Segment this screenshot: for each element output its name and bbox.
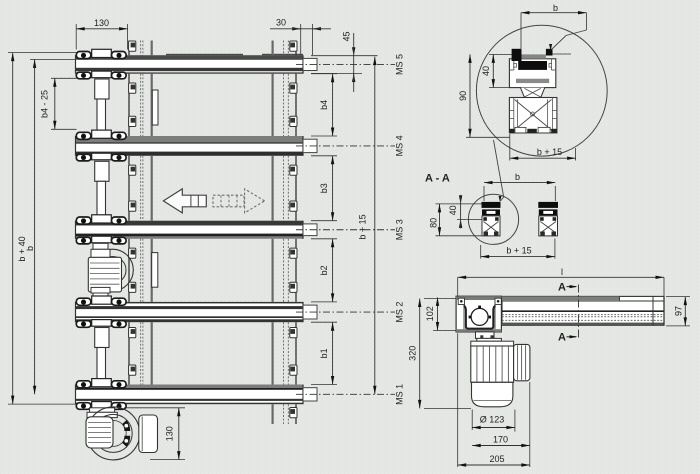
svg-text:b + 15: b + 15 — [506, 246, 531, 256]
svg-text:Ø 123: Ø 123 — [480, 414, 505, 424]
svg-text:102: 102 — [425, 306, 435, 321]
svg-text:b: b — [515, 172, 520, 182]
svg-text:320: 320 — [408, 346, 418, 361]
svg-text:b + 15: b + 15 — [537, 147, 562, 157]
svg-text:b2: b2 — [319, 265, 329, 275]
svg-text:b3: b3 — [319, 183, 329, 193]
svg-text:90: 90 — [458, 91, 468, 101]
svg-text:97: 97 — [674, 306, 684, 316]
svg-text:MS 5: MS 5 — [395, 54, 405, 75]
svg-text:40: 40 — [481, 66, 491, 76]
svg-text:MS 4: MS 4 — [395, 135, 405, 156]
svg-text:b4: b4 — [319, 100, 329, 110]
svg-text:MS 2: MS 2 — [395, 302, 405, 323]
svg-text:MS 3: MS 3 — [395, 219, 405, 240]
svg-text:130: 130 — [94, 18, 109, 28]
svg-text:A - A: A - A — [425, 173, 450, 185]
svg-text:b4 - 25: b4 - 25 — [40, 90, 50, 118]
svg-text:40: 40 — [448, 205, 458, 215]
svg-text:80: 80 — [429, 218, 439, 228]
svg-text:b: b — [25, 246, 35, 251]
svg-text:MS 1: MS 1 — [395, 384, 405, 405]
svg-text:130: 130 — [164, 426, 174, 441]
svg-text:205: 205 — [489, 454, 504, 464]
svg-text:170: 170 — [493, 435, 508, 445]
svg-text:45: 45 — [342, 31, 352, 41]
svg-text:30: 30 — [276, 18, 286, 28]
svg-text:b1: b1 — [319, 348, 329, 358]
svg-text:A: A — [558, 281, 566, 293]
svg-text:b: b — [553, 3, 558, 13]
svg-text:A: A — [558, 332, 566, 344]
svg-text:l: l — [561, 267, 563, 277]
svg-text:b + 15: b + 15 — [358, 214, 368, 239]
